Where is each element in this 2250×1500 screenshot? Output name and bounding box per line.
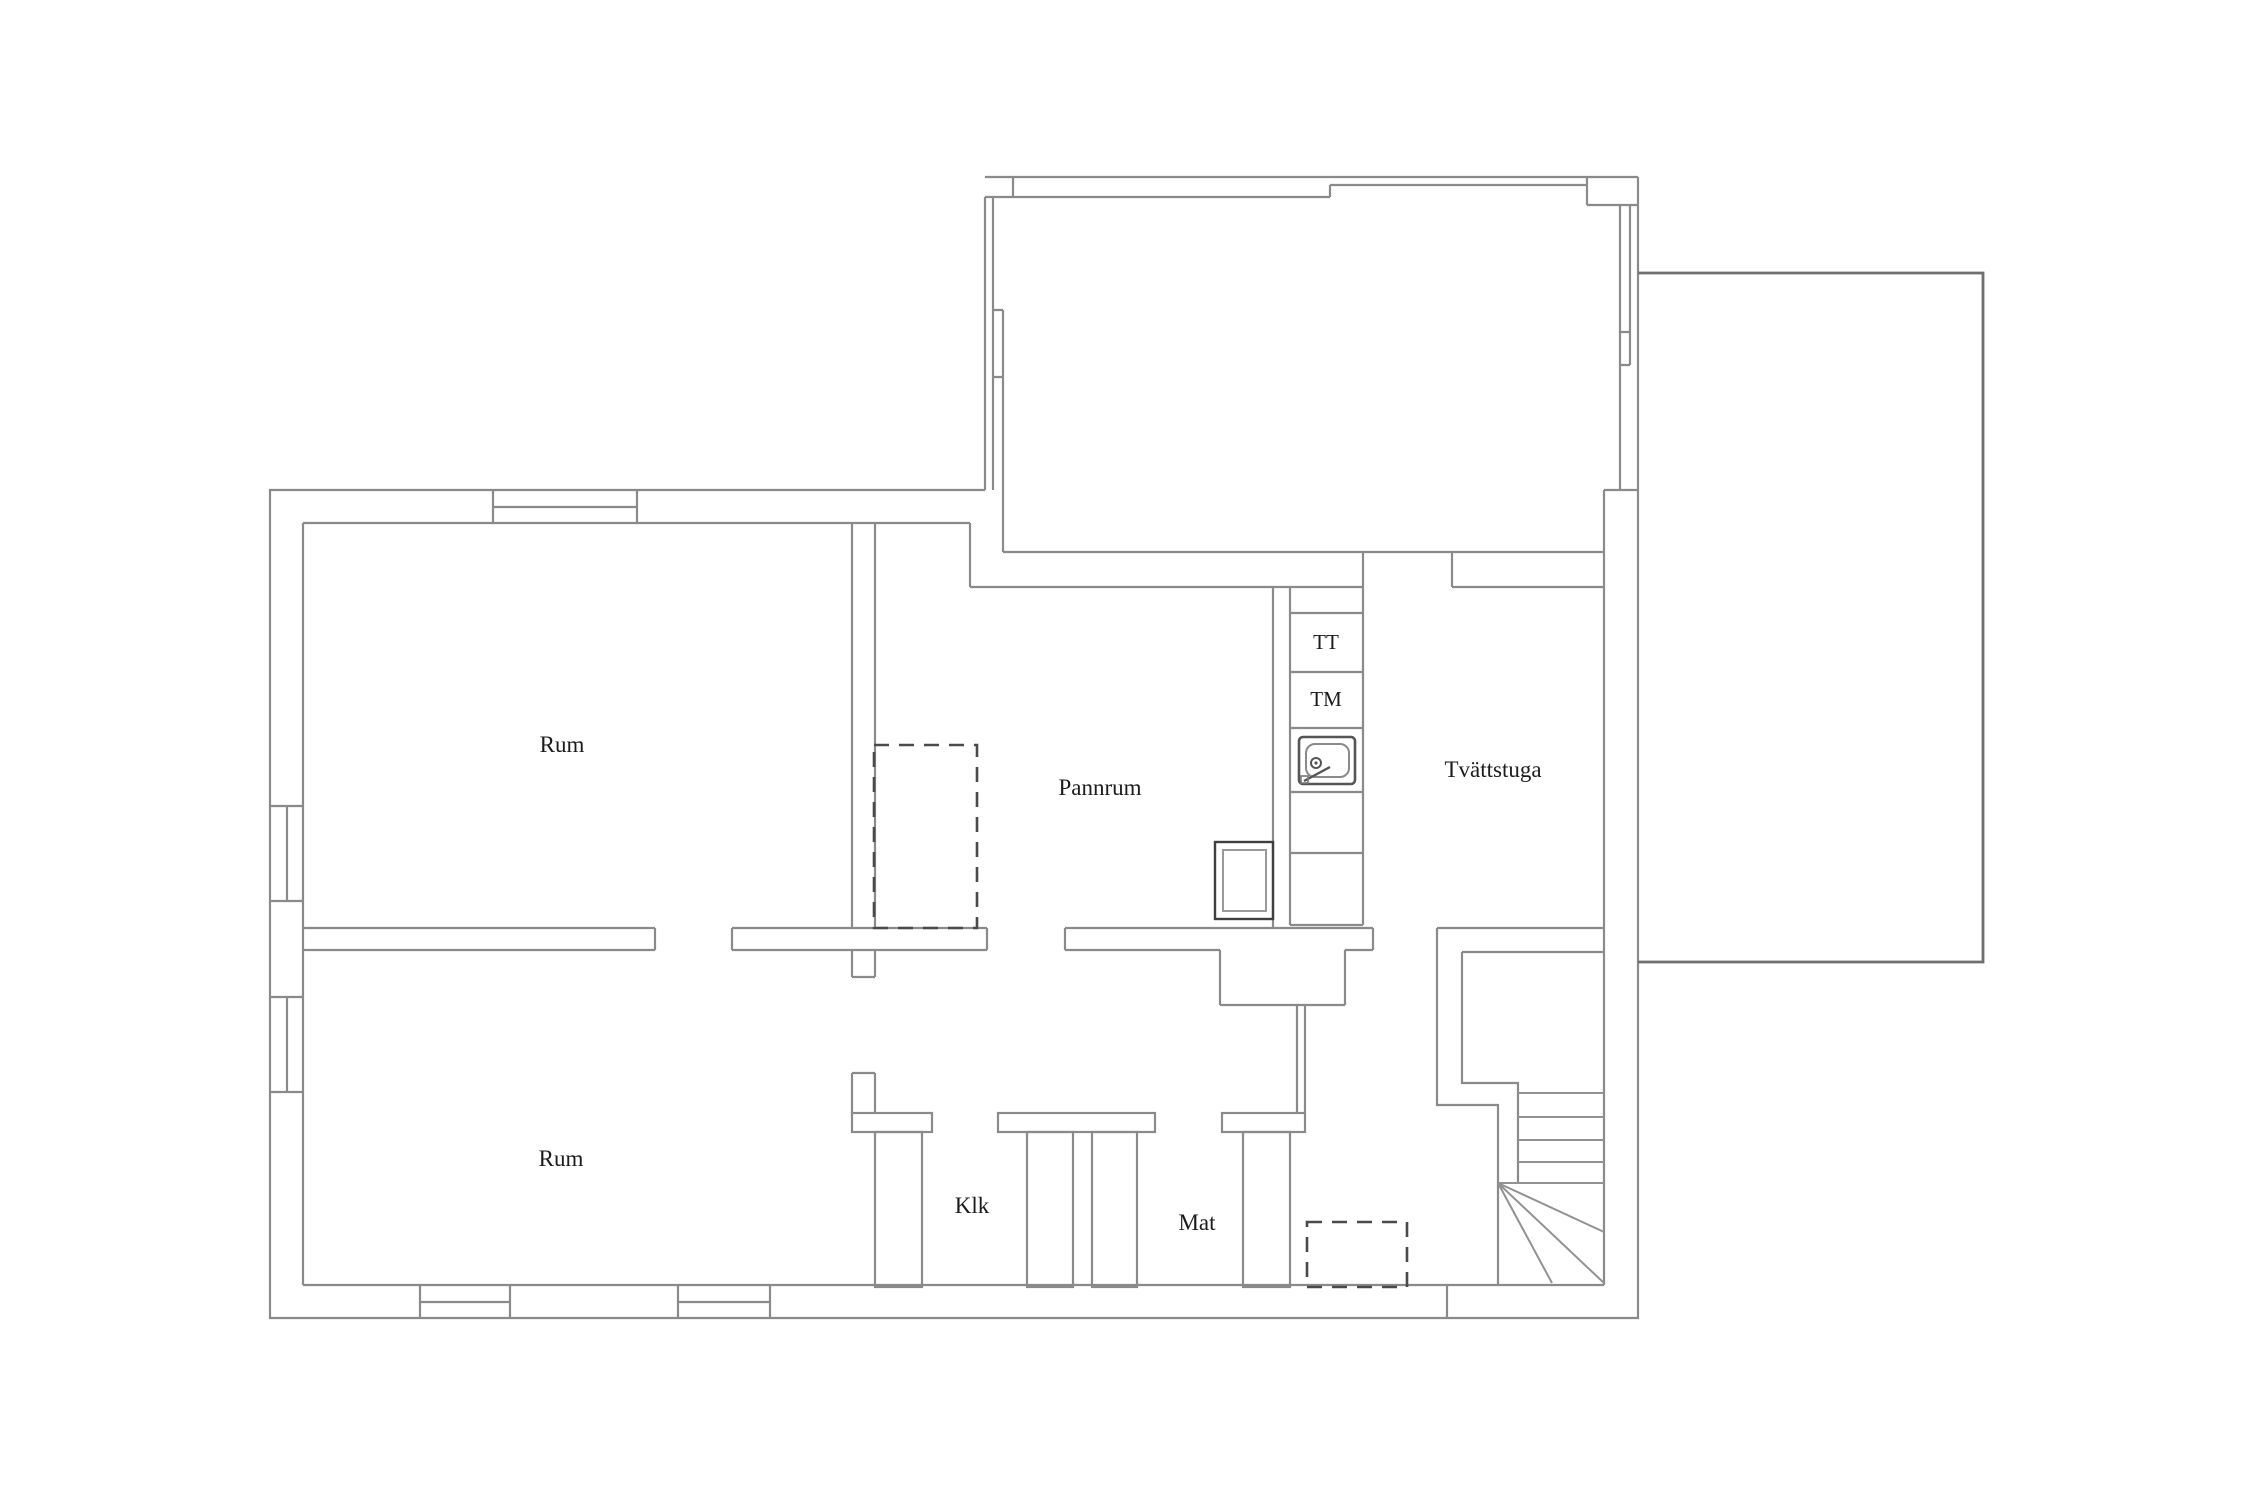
label-tt: TT [1313, 630, 1339, 654]
floor-plan-page: Rum Rum Pannrum Tvättstuga Klk Mat TT TM [0, 0, 2250, 1500]
label-klk: Klk [955, 1193, 990, 1218]
canvas-background [0, 0, 2250, 1500]
label-rum-upper: Rum [540, 732, 585, 757]
label-rum-lower: Rum [539, 1146, 584, 1171]
label-pannrum: Pannrum [1058, 775, 1141, 800]
label-tvattstuga: Tvättstuga [1444, 757, 1541, 782]
floor-plan-drawing: Rum Rum Pannrum Tvättstuga Klk Mat TT TM [0, 0, 2250, 1500]
label-tm: TM [1310, 687, 1342, 711]
label-mat: Mat [1178, 1210, 1216, 1235]
